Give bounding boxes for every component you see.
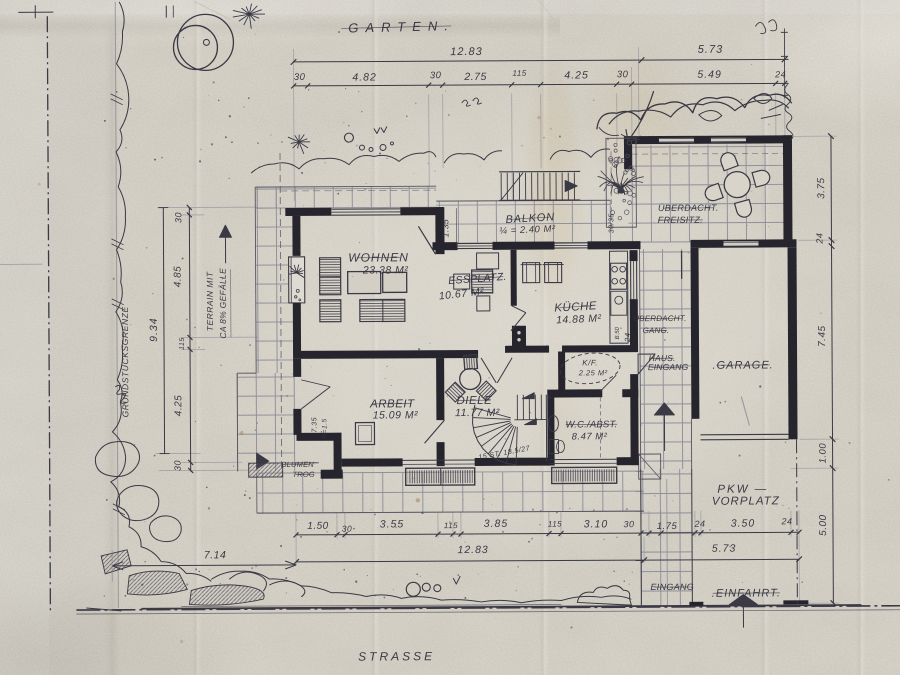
svg-text:¼ = 2.40 M²: ¼ = 2.40 M² [499, 224, 556, 237]
svg-text:1.00: 1.00 [818, 443, 829, 464]
svg-text:2.25 M²: 2.25 M² [578, 368, 608, 377]
svg-text:.EINFAHRT.: .EINFAHRT. [712, 587, 781, 599]
svg-text:4.25: 4.25 [564, 69, 589, 81]
svg-text:3.75: 3.75 [816, 177, 827, 199]
svg-text:30: 30 [617, 69, 629, 80]
svg-text:30: 30 [430, 70, 442, 81]
svg-text:2.75: 2.75 [463, 71, 487, 83]
svg-text:3.10: 3.10 [584, 518, 609, 530]
svg-text:115: 115 [444, 521, 458, 530]
svg-text:4.85: 4.85 [173, 266, 184, 288]
svg-text:11.77 M²: 11.77 M² [455, 407, 500, 419]
svg-text:8.47 M²: 8.47 M² [572, 431, 608, 442]
svg-text:GRUNDSTÜCKSGRENZE: GRUNDSTÜCKSGRENZE [120, 306, 131, 417]
svg-text:24: 24 [814, 233, 824, 245]
svg-text:15.09 M²: 15.09 M² [373, 409, 419, 421]
svg-text:14.88 M²: 14.88 M² [556, 313, 602, 327]
svg-text:24: 24 [693, 519, 705, 529]
svg-text:5.00: 5.00 [818, 514, 829, 536]
svg-text:STRASSE: STRASSE [358, 649, 435, 663]
svg-text:115: 115 [179, 337, 186, 350]
svg-text:1.75: 1.75 [657, 521, 678, 532]
svg-text:.GARAGE.: .GARAGE. [713, 359, 774, 371]
svg-text:W.C./ABST.: W.C./ABST. [565, 419, 617, 430]
svg-text:5.73: 5.73 [712, 543, 737, 555]
svg-text:12.83: 12.83 [457, 544, 488, 556]
svg-text:DIELE: DIELE [456, 395, 492, 407]
svg-text:TERRAIN MIT: TERRAIN MIT [205, 271, 215, 331]
svg-text:12.83: 12.83 [450, 46, 483, 58]
svg-text:4.82: 4.82 [352, 71, 377, 83]
svg-text:30: 30 [173, 212, 183, 223]
svg-text:24: 24 [780, 516, 792, 526]
svg-text:7.45: 7.45 [817, 325, 828, 347]
svg-text:5.49: 5.49 [697, 69, 722, 81]
svg-text:23.38 M²: 23.38 M² [362, 264, 409, 276]
svg-text:VORPLATZ: VORPLATZ [712, 495, 780, 507]
svg-text:115: 115 [548, 520, 562, 529]
svg-text:30: 30 [623, 519, 634, 529]
svg-text:30: 30 [294, 72, 306, 83]
svg-text:24: 24 [774, 69, 786, 79]
svg-text:24: 24 [623, 332, 632, 342]
svg-text:1.50: 1.50 [307, 521, 329, 532]
svg-text:PKW —: PKW — [717, 483, 768, 495]
svg-text:3.50: 3.50 [731, 518, 756, 530]
svg-text:30/35: 30/35 [608, 213, 615, 233]
svg-text:9.34: 9.34 [148, 317, 160, 342]
svg-text:5.73: 5.73 [698, 44, 723, 56]
svg-text:7.35: 7.35 [311, 417, 318, 433]
svg-text:7.14: 7.14 [204, 549, 227, 561]
svg-text:¼=1.5: ¼=1.5 [321, 418, 328, 439]
svg-text:115: 115 [512, 69, 526, 78]
svg-text:30: 30 [342, 524, 353, 534]
svg-text:1.35: 1.35 [440, 219, 450, 238]
svg-text:3.85: 3.85 [484, 518, 509, 530]
svg-text:30: 30 [173, 460, 183, 471]
svg-text:4.25: 4.25 [173, 395, 184, 417]
svg-text:3.55: 3.55 [380, 518, 405, 530]
svg-text:K/F.: K/F. [582, 358, 598, 367]
